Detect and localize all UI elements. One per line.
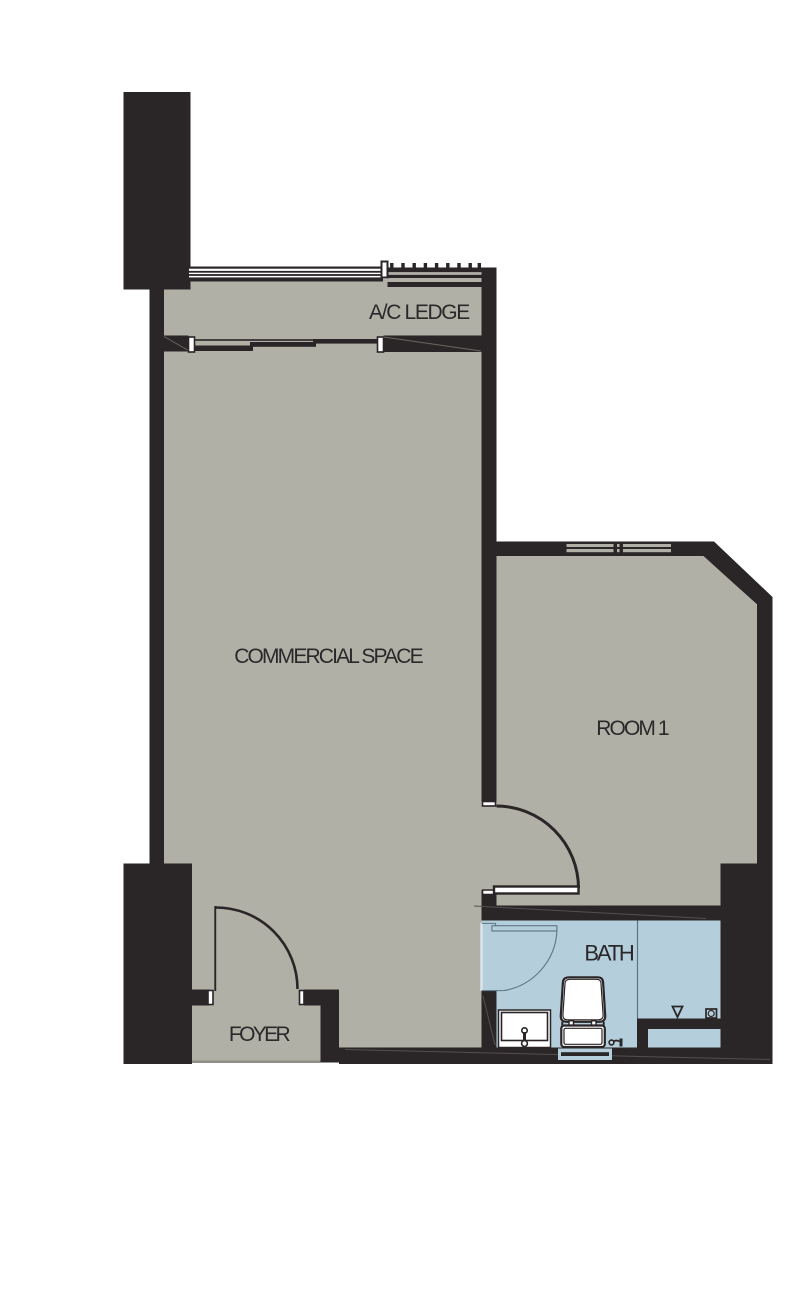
- svg-text:A/C LEDGE: A/C LEDGE: [369, 301, 470, 324]
- svg-text:COMMERCIAL SPACE: COMMERCIAL SPACE: [234, 645, 423, 668]
- svg-text:FOYER: FOYER: [229, 1023, 291, 1046]
- svg-text:BATH: BATH: [584, 941, 634, 966]
- svg-text:ROOM 1: ROOM 1: [596, 717, 669, 740]
